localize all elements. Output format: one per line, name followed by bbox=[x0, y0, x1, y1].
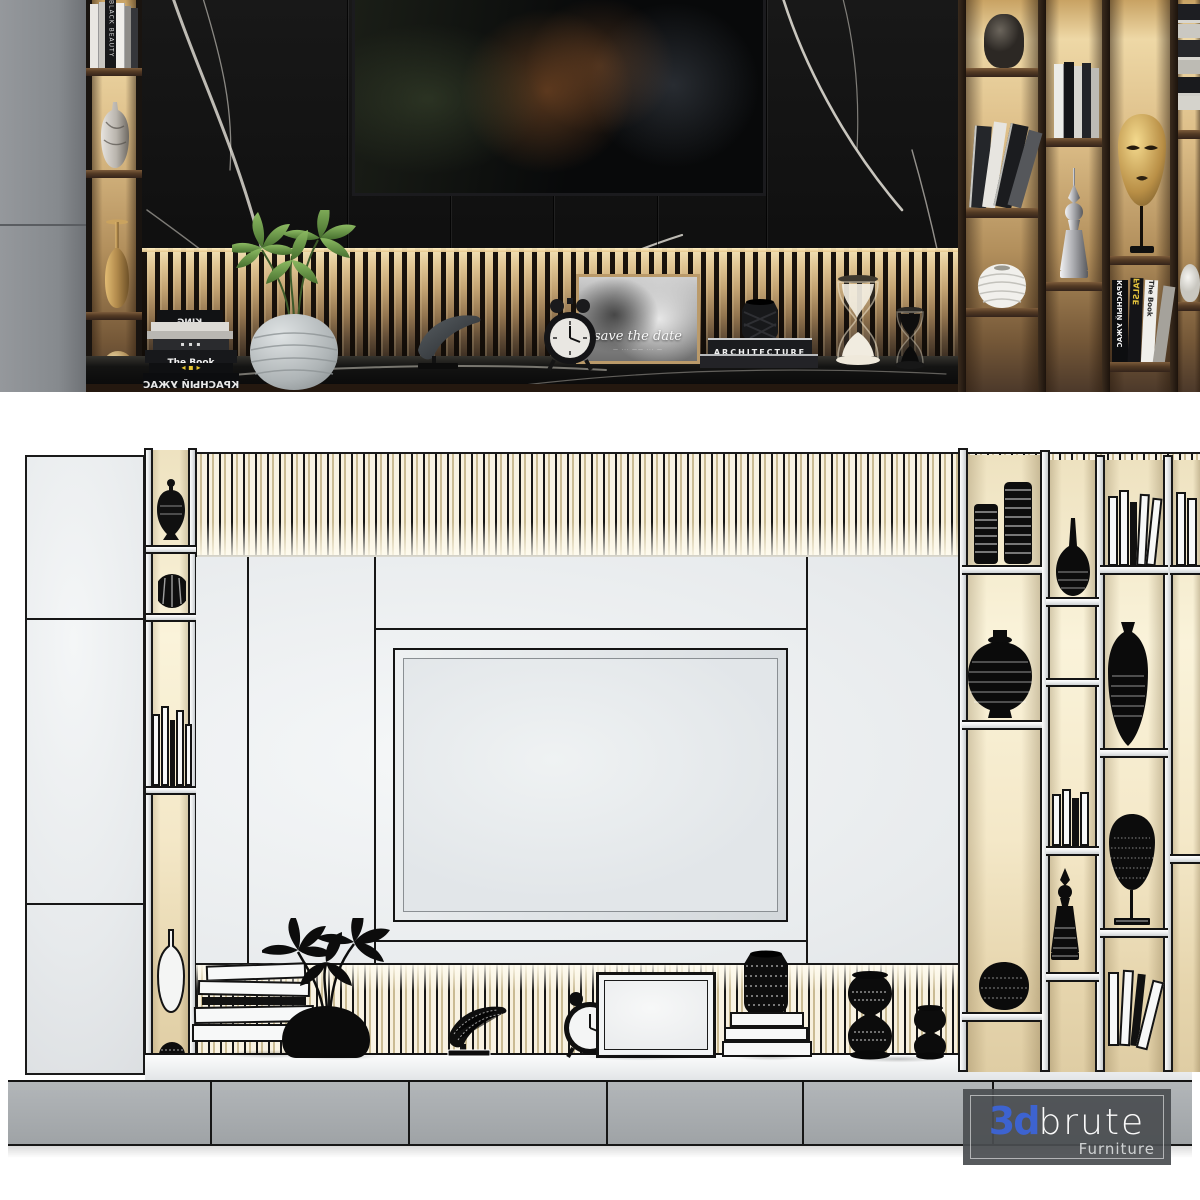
book: KING bbox=[157, 310, 223, 322]
book-spine bbox=[1054, 64, 1064, 138]
frame-inner-bevel bbox=[604, 980, 708, 1050]
wire-shelf bbox=[962, 565, 1042, 575]
wire-wall-seam bbox=[374, 628, 808, 630]
tv-wall-product-image: BLACK BEAUTY bbox=[0, 0, 1200, 1200]
wire-books-n2 bbox=[1052, 788, 1094, 846]
wire-tv-bevel bbox=[403, 658, 778, 912]
book-red-terror: КРАСНЫЙ УЖАС bbox=[1112, 280, 1128, 364]
white-ribbed-vase bbox=[976, 262, 1028, 310]
book bbox=[724, 1027, 808, 1041]
wire-shelf bbox=[962, 1012, 1042, 1022]
wood-shelf bbox=[1046, 282, 1102, 291]
gold-bottle-vase bbox=[104, 214, 130, 310]
book-the-book: The Book bbox=[145, 350, 237, 363]
hourglass-large bbox=[830, 274, 886, 366]
book-spine bbox=[1091, 68, 1099, 138]
leaning-books bbox=[968, 120, 1038, 210]
left-shelf-column: BLACK BEAUTY bbox=[86, 0, 142, 392]
wire-tall-vase bbox=[1108, 620, 1148, 748]
wire-shelf bbox=[1046, 678, 1099, 687]
wire-shelf bbox=[1100, 928, 1168, 938]
wire-shelf bbox=[1170, 565, 1200, 575]
wire-cylinder-vases bbox=[972, 480, 1034, 566]
wire-shelf bbox=[962, 720, 1042, 730]
wire-urn bbox=[156, 478, 186, 546]
left-shelf-1 bbox=[86, 68, 142, 76]
wood-shelf bbox=[1178, 302, 1200, 311]
divider-board bbox=[1170, 0, 1178, 392]
book bbox=[1178, 96, 1200, 110]
book-spine bbox=[1176, 492, 1186, 566]
book-spine bbox=[1052, 794, 1061, 846]
book bbox=[1178, 24, 1200, 38]
wire-horn bbox=[440, 998, 516, 1058]
book-red-terror: КРАСНЫЙ УЖАС bbox=[143, 373, 239, 388]
book-spine-label: КРАСНЫЙ УЖАС bbox=[1116, 280, 1124, 347]
book-spine bbox=[131, 8, 138, 68]
wire-books-and-vase bbox=[722, 948, 812, 1060]
book-spine bbox=[125, 6, 132, 68]
book-spine bbox=[1187, 498, 1197, 566]
wire-shelf bbox=[1100, 565, 1168, 575]
book-spine-label: The Book bbox=[1145, 280, 1155, 317]
wire-shelf bbox=[1100, 748, 1168, 758]
wire-wall-seam bbox=[806, 557, 808, 1000]
book bbox=[147, 331, 233, 339]
wire-hourglass-large bbox=[838, 970, 902, 1060]
wire-bottle-vase bbox=[1054, 516, 1092, 598]
item-shadow bbox=[560, 1052, 720, 1062]
book bbox=[1178, 4, 1200, 23]
wire-plant bbox=[262, 918, 402, 1058]
book-spine bbox=[116, 3, 125, 68]
marble-vase bbox=[100, 100, 130, 170]
gray-cabinet-doors bbox=[0, 0, 86, 392]
wire-shelf bbox=[1046, 846, 1099, 856]
tv-screen bbox=[352, 0, 766, 196]
drawer-seam bbox=[606, 1082, 608, 1144]
wire-photo-frame bbox=[596, 972, 716, 1058]
wire-cabinet bbox=[25, 455, 145, 1075]
item-shadow bbox=[720, 1052, 820, 1062]
silver-finial-sculpture bbox=[1056, 168, 1092, 284]
wire-shelf bbox=[146, 545, 196, 554]
standing-books bbox=[1054, 60, 1102, 138]
item-shadow bbox=[838, 1054, 958, 1064]
drawer-seam bbox=[210, 1082, 212, 1144]
wire-right-board bbox=[958, 448, 968, 1072]
wire-hourglass-small bbox=[908, 1004, 952, 1060]
white-pot bbox=[1180, 264, 1200, 302]
coffee-table-books: ARCHITECTURE bbox=[700, 298, 820, 368]
wire-sphere-vase bbox=[158, 572, 186, 612]
item-shadow bbox=[270, 1050, 400, 1062]
book: ▪ ▪ ▪ bbox=[153, 339, 229, 350]
wire-cabinet-seam bbox=[27, 903, 143, 905]
wire-books-n4 bbox=[1176, 488, 1200, 566]
wire-shelf bbox=[1046, 597, 1099, 607]
book-spine bbox=[90, 4, 99, 68]
wireframe-render bbox=[0, 392, 1200, 1200]
potted-plant bbox=[232, 210, 367, 392]
book-spine bbox=[1072, 798, 1079, 846]
wire-shelf bbox=[1046, 972, 1099, 982]
wire-leaning-books-n3 bbox=[1106, 968, 1164, 1048]
book-spine bbox=[1080, 792, 1089, 846]
divider-board bbox=[1102, 0, 1110, 392]
wire-shelf bbox=[146, 786, 196, 795]
book-spine-black-beauty: BLACK BEAUTY bbox=[105, 0, 116, 68]
book-spine bbox=[1082, 63, 1091, 138]
wood-shelf bbox=[1110, 362, 1170, 372]
book-spine bbox=[1062, 789, 1071, 846]
book-spine-label: BLACK BEAUTY bbox=[107, 0, 114, 57]
watermark-subtitle-text: Furniture bbox=[1079, 1140, 1155, 1158]
drawer-seam bbox=[408, 1082, 410, 1144]
book-spine bbox=[1064, 62, 1074, 138]
wire-ginger-jar bbox=[966, 628, 1034, 720]
book-spine bbox=[161, 706, 169, 786]
wood-shelf bbox=[966, 208, 1038, 218]
wire-shelf bbox=[146, 613, 196, 622]
book: ◂ ▪ ▸ bbox=[149, 363, 233, 373]
book-spine-label: КРАСНЫЙ УЖАС bbox=[143, 378, 239, 392]
watermark-brand-3d: 3d bbox=[989, 1099, 1039, 1143]
book-spine bbox=[99, 2, 106, 68]
book-spine bbox=[170, 720, 176, 786]
corner-book-pile bbox=[1178, 0, 1200, 130]
wood-shelf bbox=[966, 68, 1038, 77]
wire-mask-sculpture bbox=[1106, 812, 1158, 930]
wire-tv-panel bbox=[393, 648, 788, 922]
left-shelf-2 bbox=[86, 170, 142, 178]
watermark-subtitle: Furniture bbox=[1079, 1139, 1155, 1158]
book-spine bbox=[1108, 972, 1119, 1046]
book-spine bbox=[1119, 490, 1129, 566]
wire-cabinet-seam bbox=[27, 618, 143, 620]
wood-shelf bbox=[1178, 130, 1200, 139]
wire-books-left bbox=[152, 704, 192, 786]
book-spine-label: FALSE bbox=[1132, 278, 1142, 305]
book-spine bbox=[176, 710, 184, 786]
horn-sculpture bbox=[410, 306, 490, 372]
wire-bottle bbox=[156, 928, 186, 1014]
alarm-clock bbox=[542, 296, 598, 376]
book-spine bbox=[185, 724, 192, 786]
frame-caption-text: save the date bbox=[594, 329, 682, 344]
wire-books-n3 bbox=[1108, 488, 1162, 566]
drawer-seam bbox=[802, 1082, 804, 1144]
wood-shelf bbox=[966, 308, 1038, 317]
book-spine bbox=[1074, 66, 1082, 138]
wire-right-board bbox=[1163, 455, 1173, 1072]
right-shelving: КРАСНЫЙ УЖАС FALSE The Book bbox=[958, 0, 1200, 392]
book-stack: KING ▪ ▪ ▪ The Book ◂ ▪ ▸ КРАСНЫЙ УЖАС bbox=[143, 310, 239, 388]
book bbox=[1178, 77, 1200, 96]
wire-shelf bbox=[1170, 854, 1200, 864]
wood-shelf bbox=[1046, 138, 1102, 147]
watermark-brand-brute: brute bbox=[1038, 1102, 1145, 1143]
right-vertical-books: КРАСНЫЙ УЖАС FALSE The Book bbox=[1112, 278, 1170, 364]
wire-bell-finial bbox=[1048, 866, 1082, 972]
gold-mask-sculpture bbox=[1116, 112, 1168, 258]
book-spine bbox=[152, 714, 160, 786]
wire-mesh-vase bbox=[738, 948, 794, 1014]
wire-round-pot bbox=[976, 958, 1032, 1014]
book bbox=[1178, 60, 1200, 74]
book-spine bbox=[1108, 496, 1118, 566]
cabinet-seam bbox=[0, 224, 86, 226]
watermark-logo: 3dbrute Furniture bbox=[963, 1089, 1171, 1165]
wood-shelf bbox=[1110, 256, 1170, 265]
photoreal-render: BLACK BEAUTY bbox=[0, 0, 1200, 392]
hourglass-small bbox=[890, 306, 930, 370]
book bbox=[1178, 40, 1200, 60]
dark-jar bbox=[984, 14, 1024, 68]
book bbox=[730, 1012, 804, 1027]
divider-board bbox=[1038, 0, 1046, 392]
watermark-brand: 3dbrute bbox=[963, 1099, 1171, 1143]
wire-wall-seam bbox=[247, 557, 249, 1000]
wire-wall-seam bbox=[374, 940, 808, 942]
black-ribbed-vase bbox=[736, 298, 784, 340]
divider-board bbox=[958, 0, 966, 392]
left-shelf-books: BLACK BEAUTY bbox=[90, 0, 138, 68]
left-shelf-3 bbox=[86, 312, 142, 320]
book bbox=[700, 354, 818, 368]
